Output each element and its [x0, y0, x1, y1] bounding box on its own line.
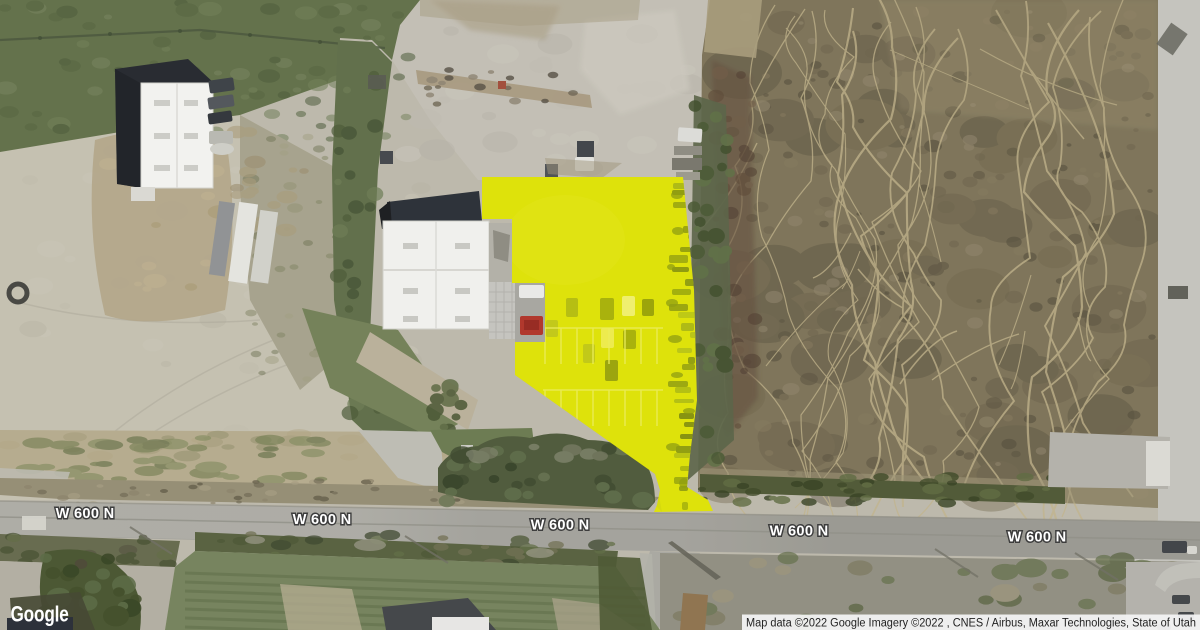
svg-text:W 600 N: W 600 N: [770, 524, 829, 540]
svg-text:Map data ©2022 Google Imagery: Map data ©2022 Google Imagery ©2022 , CN…: [746, 618, 1196, 630]
svg-text:W 600 N: W 600 N: [56, 506, 115, 522]
svg-text:W 600 N: W 600 N: [1008, 530, 1067, 546]
svg-text:W 600 N: W 600 N: [293, 512, 352, 528]
svg-text:Google: Google: [11, 603, 69, 628]
svg-text:W 600 N: W 600 N: [531, 518, 590, 534]
